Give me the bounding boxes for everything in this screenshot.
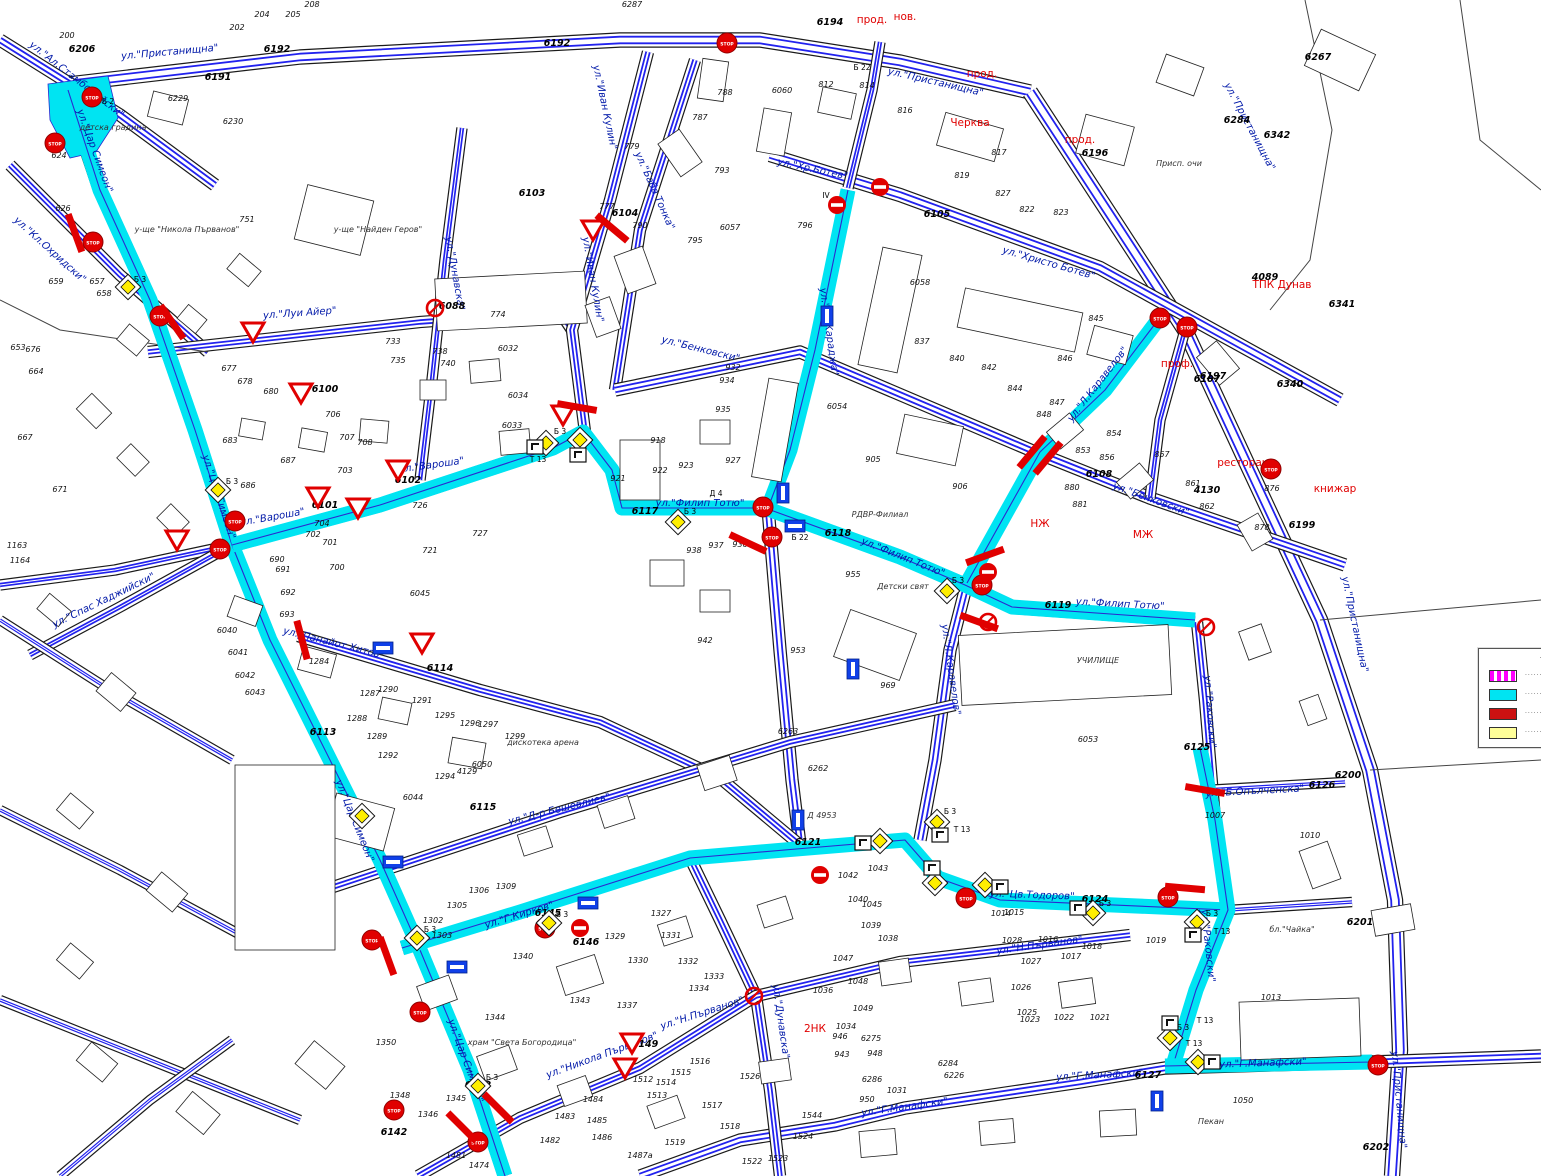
info-plate-icon (992, 880, 1008, 894)
parcel-number-label: 702 (305, 530, 320, 539)
building-outline (227, 253, 261, 286)
stop-sign-icon: STOP (1261, 459, 1281, 479)
one-way-sign-icon (785, 520, 805, 532)
street-name-label: ул."Иван Кулин" (590, 63, 619, 151)
parcel-number-label: 1327 (651, 909, 672, 918)
building-outline (614, 246, 656, 294)
route-number-label: 6114 (427, 663, 454, 674)
parcel-number-label: 667 (17, 433, 33, 442)
street-name-label: ул."Бенковски" (659, 334, 741, 364)
parcel-number-label: 827 (995, 189, 1011, 198)
parcel-number-label: 683 (222, 436, 237, 445)
building-outline (957, 288, 1083, 352)
parcel-number-label: 921 (610, 474, 625, 483)
parcel-number-label: 6053 (1078, 735, 1098, 744)
legend-route-yellow: ·········· (1489, 723, 1541, 742)
parcel-number-label: 1523 (768, 1154, 788, 1163)
stop-sign-icon: STOP (82, 87, 102, 107)
parcel-number-label: 906 (952, 482, 967, 491)
parcel-number-label: 1526 (740, 1072, 760, 1081)
parcel-number-label: 6229 (168, 94, 188, 103)
legend-route-red-swatch (1489, 708, 1517, 720)
route-number-label: 6118 (825, 528, 852, 539)
legend-route-red: ·········· (1489, 704, 1541, 723)
parcel-number-label: 847 (1049, 398, 1065, 407)
yield-sign-icon (166, 531, 188, 550)
landmark-red-label: книжар (1314, 483, 1357, 495)
parcel-number-label: 1334 (689, 984, 709, 993)
parcel-number-label: 1514 (656, 1078, 676, 1087)
route-number-label: 6108 (1086, 469, 1113, 480)
svg-text:STOP: STOP (975, 584, 989, 590)
legend-route-cyan-label: ·········· (1525, 691, 1541, 698)
parcel-number-label: 6032 (498, 344, 518, 353)
route-number-label: 6121 (795, 837, 821, 848)
parcel-number-label: 1294 (435, 772, 455, 781)
parcel-number-label: 735 (390, 356, 405, 365)
sign-code-label: Т 13 (1196, 1016, 1214, 1025)
sign-code-label: Б 3 (424, 925, 437, 934)
parcel-number-label: 1486 (592, 1133, 612, 1142)
parcel-number-label: 844 (1007, 384, 1022, 393)
parcel-number-label: 6044 (403, 793, 423, 802)
parcel-number-label: 6262 (808, 764, 828, 773)
building-outline (176, 1091, 220, 1134)
svg-text:STOP: STOP (1371, 1064, 1385, 1070)
one-way-sign-icon (847, 659, 859, 679)
svg-text:STOP: STOP (387, 1109, 401, 1115)
svg-text:STOP: STOP (1264, 468, 1278, 474)
parcel-number-label: 740 (440, 359, 455, 368)
sign-code-label: IV (822, 191, 830, 200)
parcel-number-label: 701 (322, 538, 337, 547)
sign-code-label: Б 22 (853, 63, 870, 72)
city-traffic-plan-map[interactable]: ул."Ал.Стамболийски"ул."Пристанищна"ул."… (0, 0, 1541, 1176)
parcel-number-label: 6034 (508, 391, 528, 400)
map-canvas: ул."Ал.Стамболийски"ул."Пристанищна"ул."… (0, 0, 1541, 1176)
parcel-number-label: 6042 (235, 671, 255, 680)
parcel-number-label: 1025 (1017, 1008, 1037, 1017)
route-number-label: 6200 (1335, 770, 1362, 781)
parcel-number-label: 1309 (496, 882, 516, 891)
parcel-number-label: 819 (954, 171, 969, 180)
street-name-label: ул."Луи Айер" (262, 305, 337, 321)
parcel-number-label: 1039 (861, 921, 881, 930)
parcel-number-label: 1484 (583, 1095, 603, 1104)
street-name-label: ул."Филип Тотю" (655, 498, 745, 509)
parcel-number-label: 932 (725, 363, 740, 372)
landmark-red-label: Черква (950, 117, 989, 129)
parcel-number-label: 927 (725, 456, 741, 465)
svg-text:STOP: STOP (413, 1011, 427, 1017)
landmark-red-label: прод. (857, 14, 888, 26)
legend-route-yellow-swatch (1489, 727, 1517, 739)
parcel-number-label: 777 (599, 202, 615, 211)
parcel-number-label: 657 (89, 277, 105, 286)
parcel-number-label: 861 (1185, 479, 1200, 488)
parcel-number-label: 1333 (704, 972, 724, 981)
parcel-number-label: 1034 (836, 1022, 856, 1031)
sign-code-label: Т 13 (1213, 927, 1231, 936)
parcel-number-label: 1330 (628, 956, 648, 965)
parcel-number-label: 659 (48, 277, 63, 286)
parcel-number-label: 1007 (1205, 811, 1226, 820)
parcel-number-label: 1164 (10, 556, 30, 565)
building-outline (700, 590, 730, 612)
parcel-number-label: 1481 (446, 1151, 466, 1160)
building-outline (117, 324, 150, 356)
one-way-sign-icon (373, 642, 393, 654)
map-legend: ·· ····· ·······························… (1478, 648, 1541, 748)
stop-sign-icon: STOP (762, 527, 782, 547)
route-number-label: 6117 (632, 506, 659, 517)
parcel-number-label: 822 (1019, 205, 1034, 214)
yield-sign-icon (411, 634, 433, 653)
building-outline (56, 793, 93, 829)
parcel-number-label: 6057 (720, 223, 741, 232)
parcel-number-label: 1016 (1038, 935, 1058, 944)
no-entry-sign-icon (979, 563, 997, 581)
landmark-label: Д 4953 (806, 811, 836, 820)
parcel-number-label: 693 (279, 610, 294, 619)
route-number-label: 6125 (1184, 742, 1211, 753)
route-number-label: 6146 (573, 937, 600, 948)
parcel-number-label: 1346 (418, 1110, 438, 1119)
one-way-sign-icon (383, 856, 403, 868)
parcel-number-label: 846 (1057, 354, 1072, 363)
parcel-number-label: 1513 (647, 1091, 667, 1100)
route-number-label: 6267 (1305, 52, 1332, 63)
legend-route-cyan-swatch (1489, 689, 1517, 701)
parcel-number-label: 1047 (833, 954, 854, 963)
route-number-label: 6342 (1264, 130, 1291, 141)
landmark-red-label: МЖ (1133, 529, 1154, 541)
parcel-number-label: 691 (275, 565, 290, 574)
parcel-number-label: 788 (717, 88, 732, 97)
building-outline (556, 955, 603, 996)
stop-sign-icon: STOP (225, 511, 245, 531)
parcel-number-label: 934 (719, 376, 734, 385)
parcel-number-label: 857 (1154, 450, 1170, 459)
sign-code-label: Б 3 (944, 807, 957, 816)
parcel-number-label: 751 (239, 215, 254, 224)
no-entry-sign-icon (811, 866, 829, 884)
parcel-number-label: 6050 (472, 760, 492, 769)
street-name-label: ул."Пристанищна" (1339, 575, 1370, 674)
parcel-number-label: 6041 (228, 648, 248, 657)
parcel-number-label: 1031 (887, 1086, 907, 1095)
one-way-sign-icon (821, 306, 833, 326)
route-number-label: 6340 (1277, 379, 1304, 390)
info-plate-icon (932, 828, 948, 842)
parcel-number-label: 1345 (446, 1094, 466, 1103)
street-fill (330, 705, 955, 888)
stop-sign-icon: STOP (1177, 317, 1197, 337)
parcel-number-label: 845 (1088, 314, 1103, 323)
stop-sign-icon: STOP (717, 33, 737, 53)
route-number-label: 6119 (1045, 600, 1072, 611)
parcel-number-label: 840 (949, 354, 964, 363)
svg-text:STOP: STOP (86, 241, 100, 247)
parcel-number-label: 953 (790, 646, 805, 655)
street-name-label: ул."Хр.Ботев" (775, 156, 849, 182)
route-number-label: 6100 (312, 384, 339, 395)
parcel-number-label: 708 (357, 438, 372, 447)
parcel-number-label: 969 (880, 681, 895, 690)
one-way-sign-icon (578, 897, 598, 909)
landmark-label: Пекан (1198, 1117, 1224, 1126)
parcel-number-label: 774 (490, 310, 505, 319)
legend-route-magenta-label: ·········· (1525, 672, 1541, 679)
parcel-number-label: 1515 (671, 1068, 691, 1077)
parcel-number-label: 1049 (853, 1004, 873, 1013)
info-plate-icon (570, 448, 586, 462)
parcel-number-label: 938 (686, 546, 701, 555)
route-number-label: 6201 (1347, 917, 1373, 928)
parcel-number-label: 1302 (423, 916, 443, 925)
route-number-label: 6126 (1309, 780, 1336, 791)
parcel-number-label: 878 (1254, 523, 1269, 532)
parcel-number-label: 202 (229, 23, 244, 32)
parcel-number-label: 881 (1072, 500, 1087, 509)
route-number-label: 6115 (470, 802, 497, 813)
svg-text:STOP: STOP (228, 520, 242, 526)
building-outline (647, 1095, 685, 1128)
parcel-number-label: 704 (314, 519, 329, 528)
legend-route-magenta-swatch (1489, 670, 1517, 682)
parcel-number-label: 1331 (661, 931, 681, 940)
parcel-number-label: 1524 (793, 1132, 813, 1141)
parcel-number-label: 935 (715, 405, 730, 414)
one-way-sign-icon (447, 961, 467, 973)
building-outline (979, 1119, 1015, 1146)
parcel-number-label: 1344 (485, 1013, 505, 1022)
no-entry-sign-icon (828, 196, 846, 214)
info-plate-icon (1185, 928, 1201, 942)
landmark-label: у-ще "Найден Геров" (333, 225, 422, 234)
parcel-number-label: 923 (678, 461, 693, 470)
route-number-label: 6202 (1363, 1142, 1390, 1153)
parcel-number-label: 853 (1075, 446, 1090, 455)
building-outline (56, 943, 93, 979)
parcel-number-label: 706 (325, 410, 340, 419)
route-number-label: 6341 (1329, 299, 1355, 310)
parcel-number-label: 814 (859, 81, 874, 90)
parcel-number-label: 1544 (802, 1111, 822, 1120)
info-plate-icon (1162, 1016, 1178, 1030)
landmark-label: Присп. очи (1156, 159, 1202, 168)
landmark-label: УЧИЛИЩЕ (1077, 656, 1120, 665)
svg-text:STOP: STOP (959, 897, 973, 903)
street-name-label: ул."Г.Манафски" (1055, 1068, 1144, 1084)
sign-code-label: Т 13 (529, 455, 547, 464)
parcel-number-label: 626 (55, 204, 70, 213)
sign-code-label: Д 4 (709, 489, 722, 498)
parcel-number-label: 842 (981, 363, 996, 372)
parcel-number-label: 1292 (378, 751, 398, 760)
legend-title: ·· ····· (1489, 655, 1541, 662)
parcel-number-label: 6230 (223, 117, 243, 126)
parcel-number-label: 817 (991, 148, 1007, 157)
parcel-number-label: 690 (269, 555, 284, 564)
legend-route-magenta: ·········· (1489, 666, 1541, 685)
building-outline (294, 185, 374, 256)
building-outline (700, 420, 730, 444)
street-name-label: ул."Филип Тотю" (859, 536, 946, 580)
info-plate-icon (924, 861, 940, 875)
parcel-number-label: 787 (692, 113, 708, 122)
building-outline (298, 428, 327, 452)
parcel-number-label: 880 (1064, 483, 1079, 492)
route-number-label: 6199 (1289, 520, 1316, 531)
parcel-number-label: 812 (818, 80, 833, 89)
parcel-number-label: 692 (280, 588, 295, 597)
parcel-number-label: 779 (624, 142, 639, 151)
parcel-number-label: 1013 (1261, 993, 1281, 1002)
parcel-number-label: 1487а (627, 1151, 652, 1160)
sign-code-label: Б 3 (1177, 1023, 1190, 1032)
street-name-label: ул."Пристанищна" (1221, 80, 1277, 172)
parcel-number-label: 6060 (772, 86, 792, 95)
sign-code-label: Б 3 (684, 507, 697, 516)
parcel-number-label: 6226 (944, 1071, 964, 1080)
parcel-number-label: 1517 (702, 1101, 723, 1110)
stop-sign-icon: STOP (1368, 1055, 1388, 1075)
parcel-number-label: 1306 (469, 886, 489, 895)
one-way-sign-icon (777, 483, 789, 503)
svg-text:STOP: STOP (85, 96, 99, 102)
parcel-number-label: 1015 (1004, 908, 1024, 917)
building-outline (378, 697, 412, 725)
building-outline (1239, 998, 1361, 1060)
landmark-label: храм "Света Богородица" (467, 1038, 577, 1047)
route-number-label: 6142 (381, 1127, 408, 1138)
parcel-number-label: 1305 (447, 901, 467, 910)
parcel-number-label: 200 (59, 31, 74, 40)
building-outline (469, 359, 501, 384)
parcel-number-label: 653 (10, 343, 25, 352)
one-way-sign-icon (792, 810, 804, 830)
parcel-number-label: 1332 (678, 957, 698, 966)
parcel-number-label: 687 (280, 456, 296, 465)
stop-sign-icon: STOP (753, 497, 773, 517)
legend-route-red-label: ·········· (1525, 710, 1541, 717)
parcel-number-label: 6033 (502, 421, 522, 430)
parcel-number-label: 943 (834, 1050, 849, 1059)
parcel-number-label: 1018 (1082, 942, 1102, 951)
building-outline (834, 610, 917, 681)
parcel-number-label: 6058 (910, 278, 930, 287)
sign-code-label: Т 13 (953, 825, 971, 834)
parcel-number-label: 1350 (376, 1038, 396, 1047)
parcel-number-label: 6054 (827, 402, 847, 411)
building-outline (295, 1041, 345, 1090)
svg-text:STOP: STOP (213, 548, 227, 554)
route-number-label: 6127 (1135, 1070, 1162, 1081)
building-outline (958, 625, 1171, 706)
parcel-number-label: 816 (897, 106, 912, 115)
legend-route-yellow-label: ·········· (1525, 729, 1541, 736)
building-outline (1156, 54, 1204, 96)
building-outline (958, 978, 993, 1006)
street-name-label: ул."Пристанищна" (120, 43, 219, 63)
sign-code-label: Б 3 (226, 477, 239, 486)
parcel-number-label: 918 (650, 436, 665, 445)
building-outline (235, 765, 335, 950)
stop-sign-icon: STOP (45, 133, 65, 153)
svg-text:STOP: STOP (1180, 326, 1194, 332)
info-plate-icon (1204, 1055, 1220, 1069)
route-number-label: 6206 (69, 44, 96, 55)
parcel-number-label: 1482 (540, 1136, 560, 1145)
parcel-number-label: 6284 (938, 1059, 958, 1068)
sign-code-label: Б 3 (556, 910, 569, 919)
parcel-number-label: 1297 (478, 720, 499, 729)
building-outline (1099, 1109, 1136, 1137)
building-outline (499, 429, 531, 456)
sign-code-label: Б 3 (486, 1073, 499, 1082)
parcel-number-label: 733 (385, 337, 400, 346)
building-outline (878, 958, 911, 986)
parcel-number-label: 1038 (878, 934, 898, 943)
legend-route-cyan: ·········· (1489, 685, 1541, 704)
parcel-number-label: 6045 (410, 589, 430, 598)
parcel-number-label: 876 (1264, 484, 1279, 493)
stop-sign-icon: STOP (1150, 308, 1170, 328)
building-outline (859, 1128, 897, 1157)
parcel-number-label: 1288 (347, 714, 367, 723)
landmark-label: дискотека арена (506, 738, 579, 747)
landmark-red-label: прод. (1065, 134, 1096, 146)
no-entry-sign-icon (871, 178, 889, 196)
parcel-number-label: 738 (432, 347, 447, 356)
parcel-number-label: 1042 (838, 871, 858, 880)
route-number-label: 6196 (1082, 148, 1109, 159)
parcel-number-label: 686 (240, 481, 255, 490)
parcel-number-label: 862 (1199, 502, 1214, 511)
parcel-number-label: 205 (285, 10, 300, 19)
route-number-label: 6103 (519, 188, 546, 199)
parcel-number-label: 790 (632, 221, 647, 230)
parcel-number-label: 6275 (861, 1034, 881, 1043)
parcel-number-label: 937 (708, 541, 724, 550)
landmark-red-label: прод. (967, 68, 998, 80)
parcel-number-label: 1337 (617, 1001, 638, 1010)
landmark-label: РДВР-Филиал (852, 510, 909, 519)
stop-sign-icon: STOP (384, 1100, 404, 1120)
info-plate-icon (527, 440, 543, 454)
parcel-number-label: 795 (687, 236, 702, 245)
parcel-number-label: 6043 (245, 688, 265, 697)
parcel-number-label: 955 (845, 570, 860, 579)
stop-sign-icon: STOP (210, 539, 230, 559)
building-outline (1299, 841, 1341, 889)
stop-sign-icon: STOP (410, 1002, 430, 1022)
svg-text:STOP: STOP (1153, 317, 1167, 323)
route-number-label: 6197 (1200, 371, 1227, 382)
parcel-number-label: 1050 (1233, 1096, 1253, 1105)
building-outline (759, 1058, 792, 1084)
parcel-number-label: 1163 (7, 541, 27, 550)
parcel-number-label: 1474 (469, 1161, 489, 1170)
building-outline (1371, 904, 1415, 937)
parcel-number-label: 1340 (513, 952, 533, 961)
parcel-number-label: 678 (237, 377, 252, 386)
building-outline (756, 108, 791, 156)
parcel-number-label: 823 (1053, 208, 1068, 217)
building-outline (757, 896, 793, 928)
parcel-number-label: 6263 (778, 727, 798, 736)
